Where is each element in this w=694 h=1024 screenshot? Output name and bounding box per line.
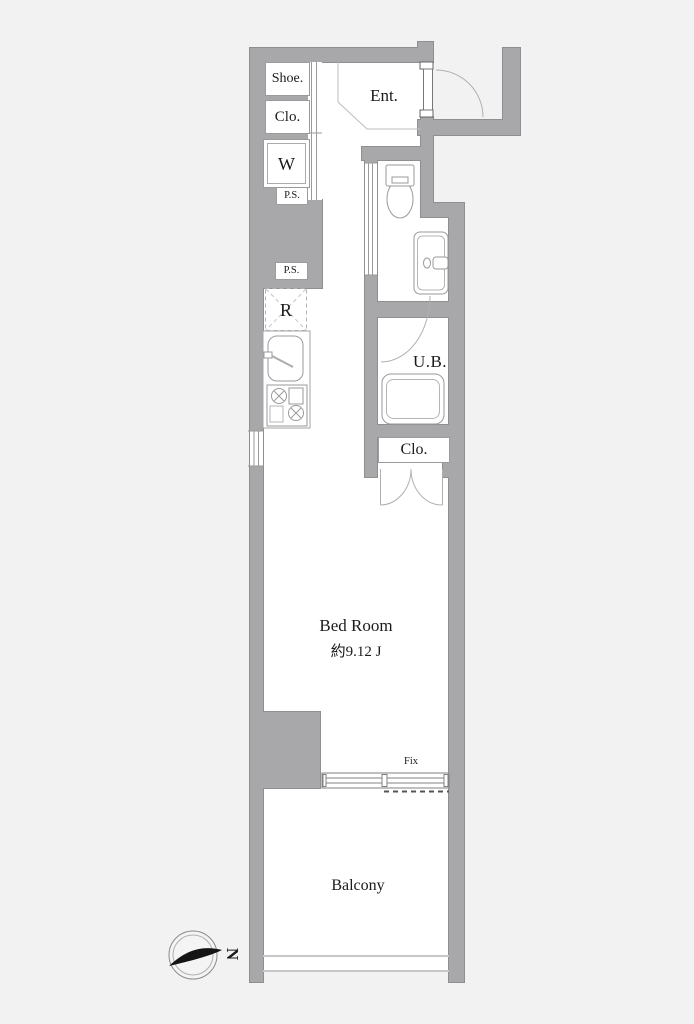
shoe-storage-label: Shoe. [265, 62, 310, 96]
wall [250, 48, 263, 982]
wall [377, 425, 450, 437]
entrance-text: Ent. [370, 87, 398, 104]
compass-north-label: N [220, 942, 246, 966]
upper-closet-label: Clo. [265, 100, 310, 134]
wall [250, 712, 320, 788]
wall [377, 302, 450, 317]
fix-window-text: Fix [404, 757, 418, 768]
pipe-space-upper-text: P.S. [284, 191, 300, 202]
balcony-label: Balcony [299, 876, 417, 896]
bedroom-label: Bed Room [281, 614, 431, 636]
entrance-label: Ent. [349, 84, 419, 106]
wall [421, 117, 433, 205]
unit-bath-label: U.B. [404, 351, 456, 371]
upper-closet-text: Clo. [275, 110, 300, 125]
pipe-space-upper: P.S. [276, 187, 308, 205]
washer-text: W [278, 155, 295, 173]
wall [418, 42, 433, 48]
floor-plan: Shoe. Clo. W P.S. P.S. R Ent. U.B. Clo. … [0, 0, 694, 1024]
unit-bath-text: U.B. [413, 353, 447, 370]
pipe-space-lower-text: P.S. [284, 266, 300, 277]
closet-text: Clo. [400, 442, 427, 458]
north-arrow-icon [169, 948, 222, 966]
compass-north-text: N [225, 948, 242, 960]
balcony-text: Balcony [331, 878, 384, 894]
compass [169, 931, 222, 979]
fix-window-label: Fix [394, 755, 428, 769]
refrigerator-label: R [265, 288, 307, 331]
exterior-strip [433, 135, 450, 203]
shoe-storage-text: Shoe. [272, 72, 304, 86]
washer-space: W [263, 139, 310, 188]
refrigerator-text: R [280, 301, 292, 319]
wall [365, 147, 377, 477]
wall [449, 203, 464, 982]
entrance-porch [433, 42, 503, 120]
wall [250, 48, 433, 62]
wall [443, 461, 453, 477]
closet-label: Clo. [378, 437, 450, 463]
pipe-space-lower: P.S. [275, 262, 308, 280]
bedroom-area-label: 約9.12 J [281, 641, 431, 663]
wall [503, 48, 520, 135]
bedroom-text: Bed Room [319, 617, 392, 634]
bedroom-area-text: 約9.12 J [331, 645, 382, 660]
